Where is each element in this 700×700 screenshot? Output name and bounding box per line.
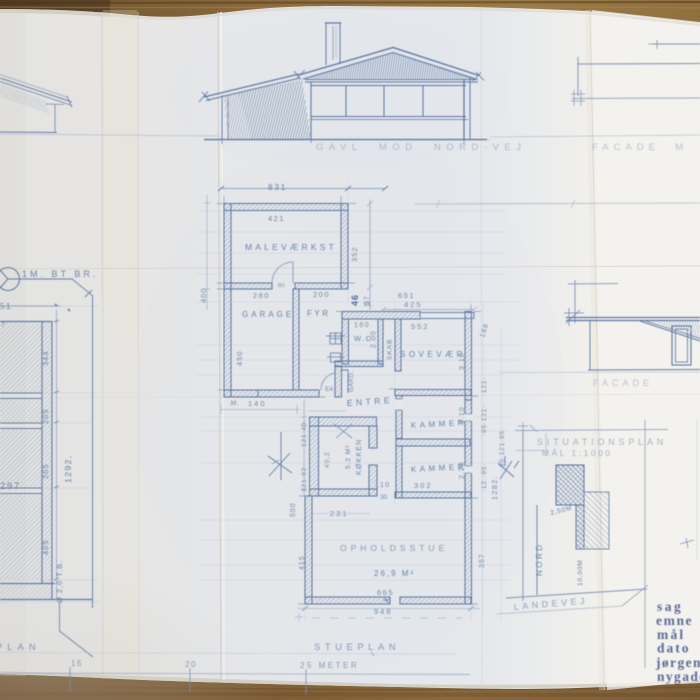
- svg-text:KØKKEN: KØKKEN: [356, 439, 363, 475]
- svg-text:CL.: CL.: [364, 302, 374, 308]
- svg-text:·95·121·: ·95·121·: [481, 405, 488, 436]
- svg-text:OPHOLDSSTUE: OPHOLDSSTUE: [340, 543, 448, 553]
- svg-text:nygade: nygade: [657, 669, 700, 684]
- svg-text:140: 140: [248, 399, 267, 408]
- svg-text:26,9 M²: 26,9 M²: [374, 569, 415, 578]
- svg-text:7: 7: [1, 322, 5, 329]
- svg-text:15: 15: [71, 659, 83, 668]
- svg-text:FACADE: FACADE: [593, 378, 653, 388]
- svg-text:352: 352: [350, 246, 359, 262]
- svg-text:51: 51: [0, 302, 12, 311]
- svg-text:665: 665: [377, 588, 394, 597]
- svg-text:651: 651: [398, 291, 415, 300]
- svg-text:20: 20: [185, 660, 197, 669]
- svg-text:344: 344: [41, 350, 50, 366]
- svg-text:FYR: FYR: [307, 309, 331, 318]
- svg-text:.M.: .M.: [229, 400, 238, 407]
- svg-text:425: 425: [404, 300, 423, 309]
- svg-text:405: 405: [41, 539, 50, 555]
- svg-text:DPLAN: DPLAN: [0, 642, 41, 653]
- svg-text:sag: sag: [657, 599, 683, 614]
- svg-text:MÅL 1:1000: MÅL 1:1000: [542, 448, 613, 458]
- svg-text:450: 450: [235, 350, 244, 366]
- svg-text:jørgen: jørgen: [655, 655, 700, 670]
- svg-text:STUEPLAN: STUEPLAN: [314, 642, 400, 653]
- svg-text:40,2: 40,2: [324, 451, 331, 468]
- svg-text:SITUATIONSPLAN: SITUATIONSPLAN: [537, 437, 667, 447]
- svg-text:200: 200: [313, 290, 330, 299]
- svg-text:GARD.: GARD.: [349, 370, 355, 392]
- svg-text:280: 280: [253, 291, 270, 300]
- svg-text:SOVEVÆR: SOVEVÆR: [400, 350, 466, 359]
- svg-text:302: 302: [414, 481, 433, 490]
- svg-text:110: 110: [375, 482, 391, 489]
- svg-text:46: 46: [350, 294, 360, 306]
- svg-text:552: 552: [411, 322, 430, 331]
- svg-text:5,2 M²: 5,2 M²: [345, 445, 352, 469]
- svg-text:1M. BT BR.: 1M. BT BR.: [22, 269, 98, 279]
- svg-text:60: 60: [278, 283, 285, 289]
- svg-text:160: 160: [354, 322, 370, 329]
- svg-text:415: 415: [299, 555, 306, 570]
- svg-text:E4: E4: [325, 386, 333, 393]
- svg-text:121·40·: 121·40·: [301, 419, 308, 447]
- svg-text:10,00M: 10,00M: [577, 560, 584, 586]
- svg-text:FACADE M: FACADE M: [592, 142, 688, 153]
- svg-text:1292.: 1292.: [63, 454, 73, 483]
- svg-text:·12.·95·: ·12.·95·: [481, 463, 488, 492]
- svg-text:MALEVÆRKST: MALEVÆRKST: [245, 242, 337, 252]
- svg-text:·121·: ·121·: [481, 377, 488, 396]
- svg-text:GAVL MOD NORD-VEJ: GAVL MOD NORD-VEJ: [316, 142, 526, 153]
- svg-text:421: 421: [268, 214, 285, 223]
- svg-text:121·92·: 121·92·: [301, 464, 308, 492]
- svg-text:205: 205: [41, 408, 50, 424]
- svg-text:emne: emne: [656, 613, 693, 628]
- svg-text:Ø 2,0 T.B.: Ø 2,0 T.B.: [55, 560, 64, 603]
- svg-text:2,26: 2,26: [459, 461, 466, 479]
- svg-text:2.10: 2.10: [459, 406, 466, 424]
- svg-text:2.00: 2.00: [371, 330, 378, 348]
- svg-text:25 METER: 25 METER: [300, 661, 359, 670]
- svg-text:NORD: NORD: [535, 542, 544, 576]
- svg-text:GARAGE: GARAGE: [242, 310, 294, 319]
- svg-text:1282.: 1282.: [490, 475, 499, 500]
- svg-text:831: 831: [268, 183, 287, 192]
- svg-text:500: 500: [290, 502, 297, 517]
- svg-text:3.10: 3.10: [459, 352, 466, 370]
- svg-text:SKAB: SKAB: [387, 339, 394, 360]
- svg-text:30: 30: [380, 494, 388, 501]
- svg-text:297: 297: [0, 481, 21, 491]
- svg-text:dato: dato: [657, 641, 691, 656]
- svg-text:205: 205: [41, 463, 50, 479]
- svg-text:357: 357: [479, 553, 486, 568]
